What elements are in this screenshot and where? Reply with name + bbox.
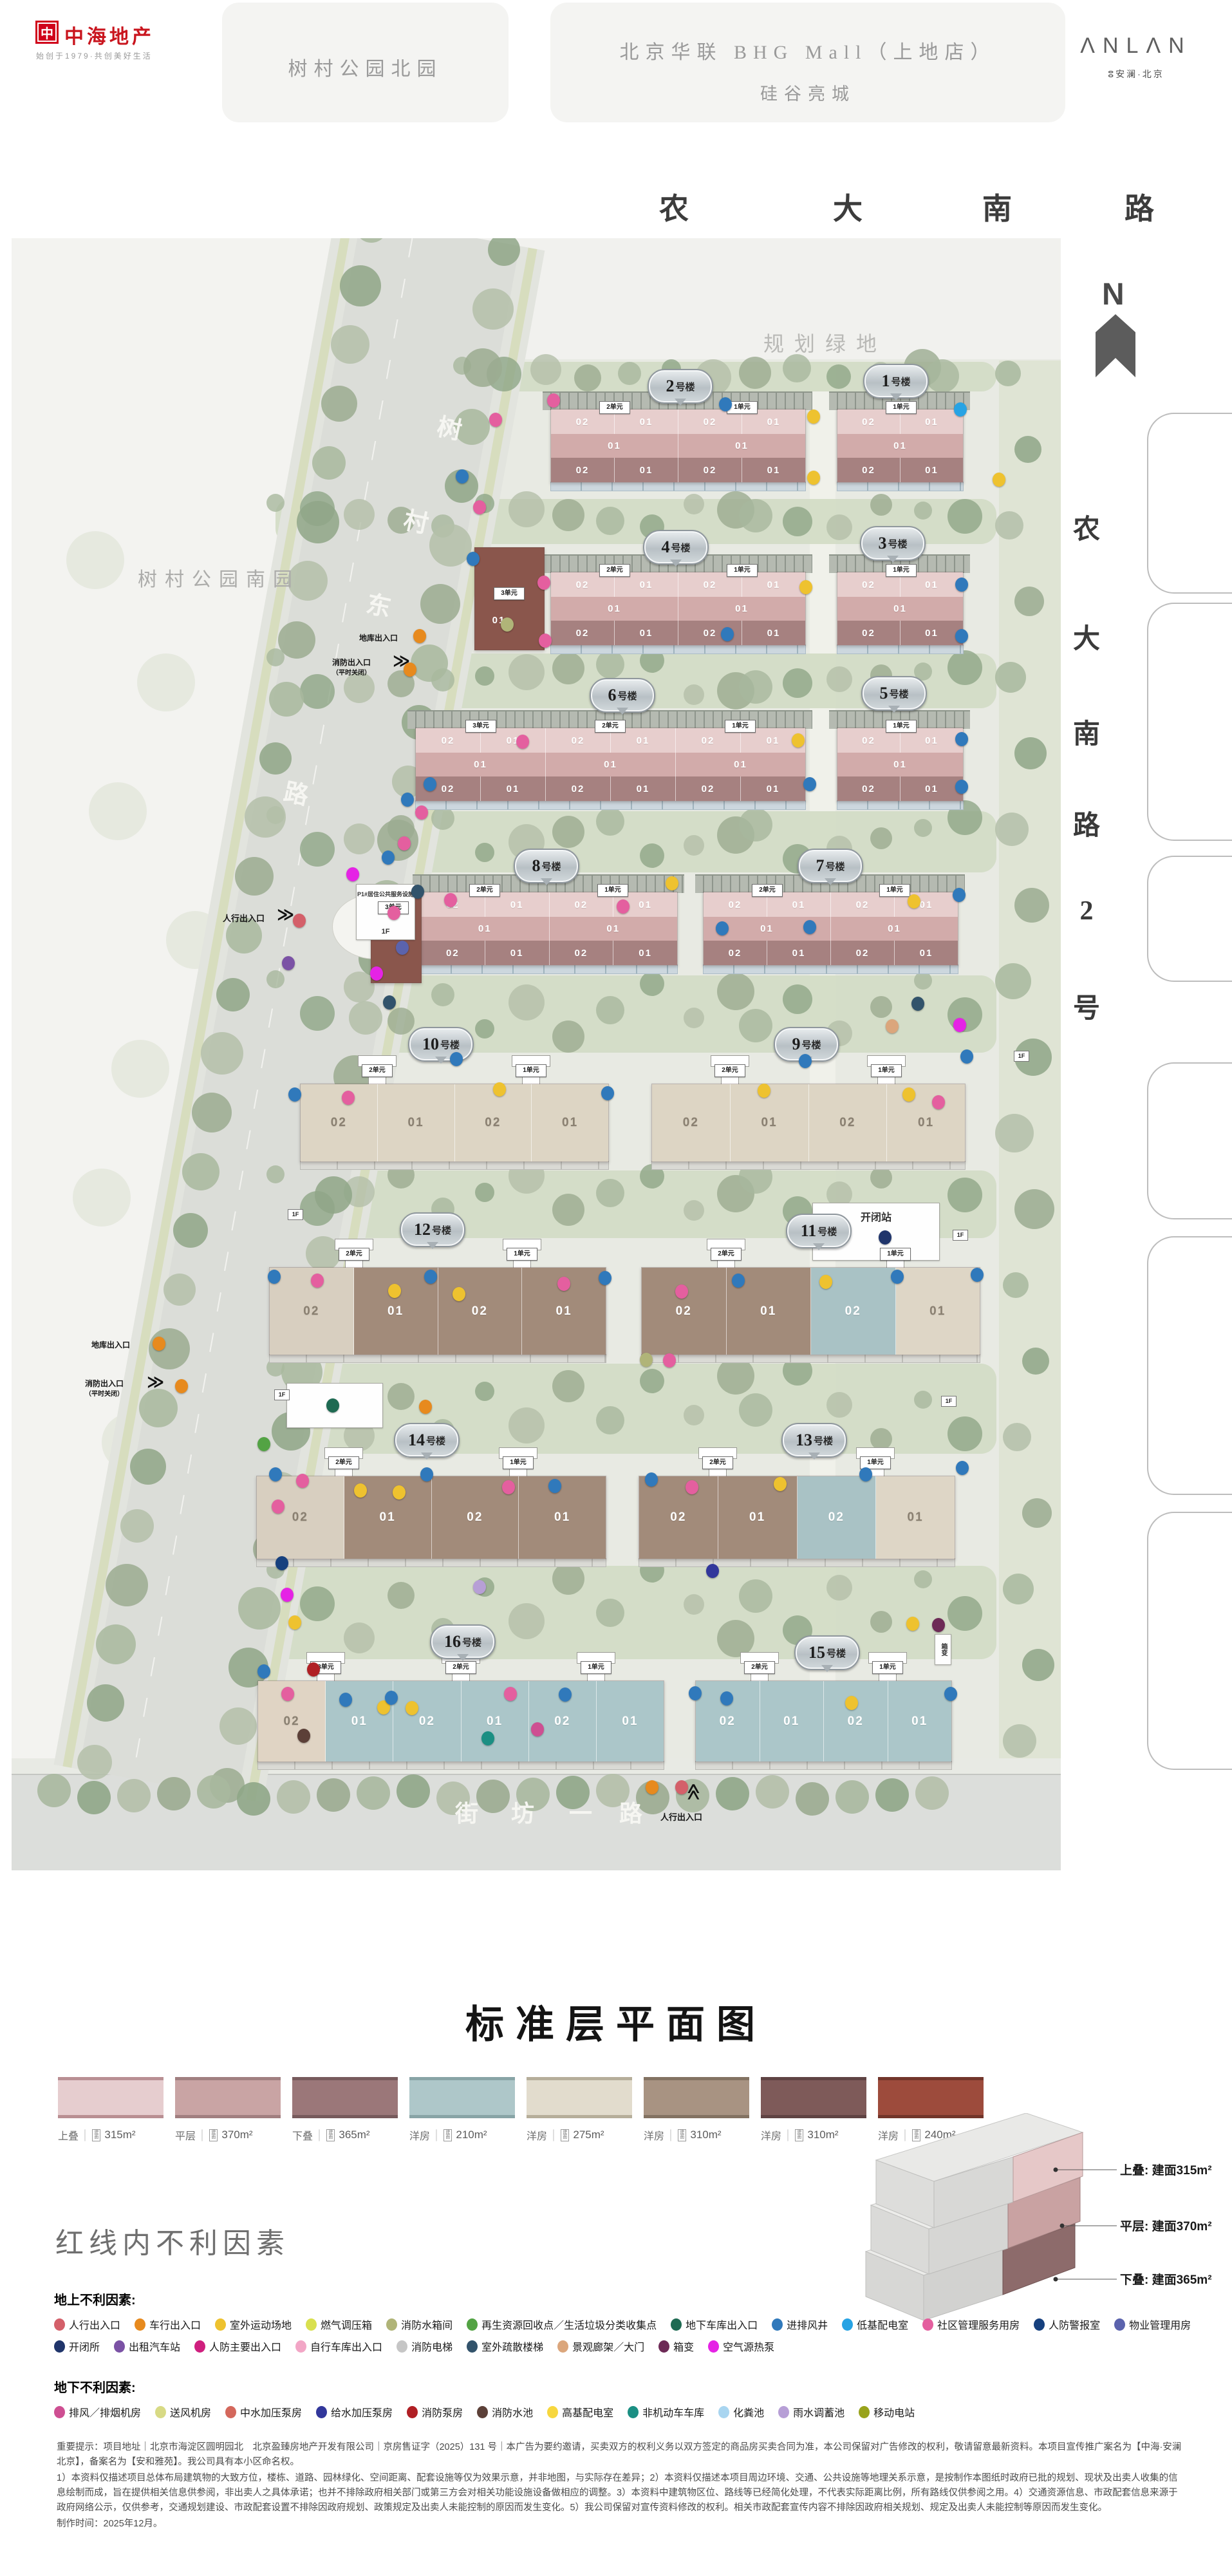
garden-tree: [552, 652, 584, 684]
factor-dot-sport: [493, 1082, 506, 1096]
garden-tree: [640, 843, 664, 868]
south-tree: [117, 1779, 151, 1812]
factor-legend-dot: [1114, 2318, 1125, 2331]
factor-item: 进排风井: [772, 2317, 828, 2332]
legend-text: 370m²: [221, 2129, 252, 2141]
factor-item: 化粪池: [718, 2404, 764, 2420]
street-tree: [182, 1153, 219, 1190]
unit-entrance-tag: 3单元: [465, 720, 496, 733]
factor-dot-vent: [269, 1467, 282, 1481]
factor-dot-comm: [932, 1095, 945, 1109]
facility-label: 箱变: [935, 1635, 951, 1664]
unit-cell: 01: [678, 597, 805, 621]
building-callout-13: 13号楼: [781, 1423, 847, 1458]
factor-item: 消防水池: [477, 2404, 533, 2420]
east-tree: [1022, 1348, 1049, 1375]
south-tree: [77, 1781, 111, 1814]
garden-tree: [596, 807, 624, 836]
floor-tag-1f: 1F: [274, 1389, 290, 1400]
factor-dot-heat: [346, 867, 359, 881]
factor-legend-dot: [397, 2340, 407, 2353]
slab-row: 02010201: [421, 892, 677, 917]
factor-legend-label: 箱变: [673, 2338, 694, 2354]
neighbor-block: [1147, 1512, 1232, 1770]
factor-dot-sport: [388, 1284, 401, 1298]
factor-dot-sport: [799, 580, 812, 594]
factor-dot-comm: [686, 1480, 698, 1494]
street-tree: [245, 796, 286, 838]
legend-text: │: [785, 2130, 791, 2141]
east-tree: [1014, 436, 1041, 463]
factors-above-list: 人行出入口车行出入口室外运动场地燃气调压箱消防水箱间再生资源回收点／生活垃圾分类…: [54, 2317, 1219, 2360]
slab-row: 010101: [416, 753, 805, 776]
legend-text: 洋房: [409, 2127, 430, 2143]
factor-dot-vent: [955, 780, 968, 794]
garden-tree: [870, 1167, 892, 1189]
south-tree: [37, 1774, 71, 1807]
factor-legend-label: 中水加压泵房: [240, 2404, 302, 2420]
factor-legend-dot: [477, 2406, 488, 2418]
factor-dot-sport: [393, 1485, 406, 1500]
unit-cell: 01: [615, 621, 678, 645]
garden-tree: [783, 507, 812, 536]
legend-swatch: [527, 2077, 632, 2118]
east-tree: [1022, 1649, 1054, 1681]
east-road-name-char: 大: [1072, 617, 1101, 656]
garden-tree: [783, 984, 812, 1014]
factor-legend-dot: [547, 2406, 558, 2418]
factor-dot-vent: [859, 1467, 872, 1481]
entrance-arrow-icon: ≫: [147, 1374, 164, 1391]
building-callout-8: 8号楼: [514, 849, 579, 883]
factor-legend-dot: [859, 2406, 870, 2418]
garden-tree: [596, 1599, 624, 1627]
callout-number: 3: [878, 534, 886, 553]
south-tree: [357, 1776, 390, 1810]
east-tree: [1014, 587, 1044, 616]
factor-item: 出租汽车站: [114, 2338, 180, 2354]
street-tree: [219, 1707, 257, 1745]
building-2-slab: 02010201010102010201: [550, 409, 806, 483]
factor-legend-dot: [557, 2340, 568, 2353]
unit-cell: 01: [831, 917, 958, 941]
legend-label: 洋房│建面310m²: [644, 2127, 749, 2143]
legend-text: 建面: [561, 2129, 569, 2141]
site-plan-map: 街坊一路树村东路规划绿地树村公园南园020102010101020102012单…: [12, 238, 1061, 1870]
unit-cell: 01: [837, 597, 963, 621]
unit-cell: 01: [421, 917, 550, 941]
unit-cell: 02: [642, 1268, 727, 1355]
legend-text: 建面: [326, 2129, 335, 2141]
garden-tree: [684, 684, 704, 705]
factor-dot-fpump: [307, 1662, 320, 1677]
garden-tree: [300, 674, 335, 709]
building-1-slab: 0201010201: [837, 409, 964, 483]
unit-entrance-tag: 2单元: [711, 1248, 742, 1261]
factor-dot-comm: [537, 576, 550, 590]
factor-dot-vent: [456, 469, 469, 484]
factor-dot-vent: [891, 1270, 904, 1284]
unit-cell: 02: [831, 941, 895, 965]
factor-dot-comm: [473, 500, 486, 514]
callout-number: 7: [816, 856, 824, 876]
factor-dot-sport: [906, 1617, 919, 1631]
garden-tree: [684, 1008, 704, 1028]
factor-dot-sport: [902, 1087, 915, 1102]
factor-dot-bike: [481, 1731, 494, 1745]
factor-legend-dot: [194, 2340, 205, 2353]
road-name-char: 农: [657, 185, 691, 228]
unit-cell: 02: [798, 1476, 877, 1559]
factor-dot-comm: [663, 1353, 676, 1368]
factor-dot-vent: [424, 1270, 437, 1284]
garden-tree: [739, 1393, 772, 1427]
factor-dot-vent: [420, 1467, 433, 1481]
unit-cell: 01: [550, 917, 678, 941]
street-tree: [411, 644, 448, 682]
unit-cell: 01: [678, 434, 805, 458]
unit-cell: 02: [809, 1084, 888, 1161]
factor-legend-label: 高基配电室: [562, 2404, 613, 2420]
factor-item: 景观廊架／大门: [557, 2338, 644, 2354]
factor-legend-label: 消防水池: [492, 2404, 533, 2420]
unit-entrance-tag: 3单元: [494, 587, 525, 600]
factor-legend-label: 给水加压泵房: [331, 2404, 393, 2420]
unit-entrance-tag: 1单元: [727, 564, 758, 577]
unit-cell: 02: [639, 1476, 718, 1559]
factor-dot-fpool: [297, 1729, 310, 1743]
garden-tree: [914, 972, 932, 990]
south-tree: [157, 1777, 191, 1810]
unit-cell: 01: [718, 1476, 798, 1559]
building-plinth: [837, 482, 964, 491]
callout-number: 15: [808, 1643, 825, 1662]
factor-dot-veh: [175, 1379, 188, 1393]
factor-legend-dot: [772, 2318, 783, 2331]
unit-cell: 02: [678, 458, 742, 482]
unit-cell: 01: [519, 1476, 606, 1559]
factor-item: 消防电梯: [397, 2338, 453, 2354]
factors-below-list: 排风／排烟机房送风机房中水加压泵房给水加压泵房消防泵房消防水池高基配电室非机动车…: [54, 2404, 1219, 2426]
street-tree: [315, 1176, 352, 1214]
south-tree: [397, 1774, 430, 1808]
factor-dot-vent: [385, 1691, 398, 1705]
factor-dot-vent: [955, 732, 968, 746]
east-tree: [995, 361, 1021, 386]
street-tree: [238, 1587, 281, 1630]
factor-dot-sport: [845, 1696, 858, 1710]
legend-item-4: 洋房│建面275m²: [527, 2077, 632, 2143]
site-plan-poster: 树村公园北园北京华联 BHG Mall（上地店）硅谷亮城 中 中海地产 始创于1…: [0, 0, 1232, 2576]
slab-row: 01: [837, 434, 963, 458]
unit-cell: 01: [741, 776, 805, 801]
unit-cell: 01: [888, 1681, 952, 1762]
unit-entrance-tag: 2单元: [599, 564, 630, 577]
slab-row: 0101: [704, 917, 958, 941]
factor-dot-slate: [411, 885, 424, 899]
building-plinth: [415, 800, 806, 810]
legend-text: 315m²: [104, 2129, 135, 2141]
unit-entrance-tag: 2单元: [362, 1064, 393, 1077]
building-callout-5: 5号楼: [861, 676, 927, 711]
callout-suffix: 号楼: [891, 375, 910, 388]
factor-legend-dot: [658, 2340, 669, 2353]
north-arrow-icon: [1088, 310, 1143, 388]
callout-suffix: 号楼: [671, 541, 690, 554]
factor-dot-rain: [473, 1580, 486, 1594]
factor-item: 高基配电室: [547, 2404, 613, 2420]
garden-tree: [475, 1382, 494, 1401]
factor-dot-sport: [288, 1615, 301, 1630]
garden-tree: [530, 354, 561, 385]
building-plinth: [300, 1161, 609, 1170]
factor-legend-label: 自行车库出入口: [310, 2338, 382, 2354]
street-tree: [139, 1389, 178, 1427]
street-tree: [259, 742, 292, 775]
factor-dot-comm: [557, 1277, 570, 1291]
factor-dot-xiang: [932, 1618, 945, 1632]
factor-dot-comm: [502, 1480, 515, 1494]
building-plinth: [550, 482, 806, 491]
factor-item: 消防泵房: [407, 2404, 463, 2420]
factor-legend-label: 出租汽车站: [129, 2338, 180, 2354]
floor-tag-1f: 1F: [941, 1396, 957, 1407]
unit-entrance-tag: 2单元: [328, 1456, 359, 1469]
east-road-name-char: 2: [1072, 896, 1101, 926]
factor-item: 物业管理用房: [1114, 2317, 1191, 2332]
factor-dot-vent: [803, 777, 816, 791]
slab-row: 0101: [551, 434, 805, 458]
factor-dot-taxi: [282, 956, 295, 970]
callout-number: 9: [792, 1035, 800, 1054]
entrance-arrow-icon: ≫: [686, 1783, 702, 1800]
stack-iso-diagram: 上叠: 建面315m² 平层: 建面370m² 下叠: 建面365m²: [830, 2113, 1229, 2338]
street-tree: [349, 1001, 382, 1035]
east-tree: [1003, 1724, 1036, 1758]
south-tree: [197, 1775, 230, 1809]
legend-swatch: [58, 2077, 163, 2118]
factor-legend-label: 化粪池: [733, 2404, 764, 2420]
entrance-arrow-icon: ≫: [393, 653, 410, 670]
street-tree: [130, 1449, 166, 1485]
unit-entrance-tag: 2单元: [599, 401, 630, 414]
factor-dot-vent: [971, 1268, 984, 1282]
garden-tree: [387, 1383, 415, 1410]
garden-tree: [431, 807, 454, 830]
callout-number: 5: [879, 684, 888, 703]
factor-dot-comm: [272, 1500, 285, 1514]
unit-cell: 01: [611, 776, 676, 801]
legend-item-1: 平层│建面370m²: [175, 2077, 281, 2143]
factor-dot-heat: [281, 1588, 294, 1602]
factor-dot-sport: [993, 473, 1005, 487]
legend-swatch: [761, 2077, 866, 2118]
unit-cell: 01: [887, 1084, 965, 1161]
garden-tree: [509, 1407, 545, 1443]
garden-tree: [684, 494, 704, 514]
east-tree: [995, 813, 1029, 846]
factor-item: 雨水调蓄池: [778, 2404, 845, 2420]
factor-legend-dot: [922, 2318, 933, 2331]
building-3-slab: 0201010201: [837, 572, 964, 646]
factor-dot-exh: [531, 1722, 544, 1736]
building-5-slab: 0201010201: [837, 728, 964, 802]
garden-tree: [739, 808, 772, 841]
project-brand: ΛNLΛN ⵓ安澜·北京: [1069, 33, 1204, 80]
factor-dot-veh: [153, 1337, 165, 1351]
south-tree: [835, 1780, 869, 1814]
building-plinth: [550, 644, 806, 654]
factor-legend-label: 消防泵房: [422, 2404, 463, 2420]
garden-tree: [870, 1428, 892, 1450]
factor-dot-comm: [516, 735, 529, 749]
factor-legend-dot: [54, 2318, 65, 2331]
factor-dot-veh: [419, 1400, 432, 1414]
neighbor-block: [1147, 603, 1232, 841]
park-tree: [111, 1040, 169, 1098]
legend-text: 洋房: [644, 2127, 664, 2143]
factor-dot-sport: [354, 1483, 367, 1498]
factor-dot-water: [706, 1564, 719, 1578]
unit-cell: 01: [485, 941, 550, 965]
unit-entrance-tag: 1单元: [516, 1064, 546, 1077]
disclaimer-p1: 重要提示：项目地址｜北京市海淀区圆明园北 北京盈臻房地产开发有限公司｜京房售证字…: [57, 2440, 1183, 2470]
entrance-label: 消防出入口: [332, 657, 371, 668]
callout-number: 6: [608, 686, 616, 705]
unit-cell: 01: [378, 1084, 455, 1161]
factor-dot-vent: [955, 578, 968, 592]
unit-cell: 02: [438, 1268, 523, 1355]
garden-tree: [475, 843, 494, 862]
factor-item: 室外疏散楼梯: [467, 2338, 543, 2354]
callout-number: 2: [666, 377, 674, 396]
east-tree: [995, 1114, 1034, 1152]
factor-item: 空气源热泵: [708, 2338, 774, 2354]
garden-tree: [552, 1563, 584, 1595]
building-plinth: [837, 800, 964, 810]
building-callout-1: 1号楼: [863, 364, 929, 399]
unit-cell: 02: [550, 941, 614, 965]
south-tree: [476, 1780, 510, 1813]
factor-legend-dot: [114, 2340, 125, 2353]
garden-tree: [640, 972, 664, 996]
unit-entrance-tag: 1单元: [507, 1248, 537, 1261]
factor-legend-dot: [467, 2318, 478, 2331]
east-tree: [1014, 1189, 1054, 1229]
factor-dot-comm: [342, 1091, 355, 1105]
factor-dot-vent: [716, 921, 729, 935]
factor-item: 人防警报室: [1034, 2317, 1100, 2332]
factor-dot-slate: [383, 995, 396, 1010]
unit-entrance-tag: 1单元: [581, 1661, 611, 1674]
east-tree: [1003, 1423, 1031, 1451]
legend-item-5: 洋房│建面310m²: [644, 2077, 749, 2143]
unit-cell: 02: [837, 776, 901, 801]
garden-tree: [947, 1596, 982, 1631]
anlan-subtitle: ⵓ安澜·北京: [1069, 68, 1204, 80]
slab-row: 01: [837, 597, 963, 621]
neighbor-block: [1147, 856, 1232, 982]
disclaimer-p2: 1）本资料仅描述项目总体布局建筑物的大致方位，楼栋、道路、园林绿化、空间距离、配…: [57, 2471, 1183, 2515]
garden-tree: [596, 507, 624, 535]
factor-dot-vent: [257, 1664, 270, 1678]
factor-dot-vent: [955, 629, 968, 643]
factor-dot-vent: [960, 1049, 973, 1064]
factor-legend-label: 空气源热泵: [723, 2338, 774, 2354]
unit-entrance-tag: 1单元: [886, 720, 917, 733]
factor-dot-sport: [406, 1701, 418, 1715]
factor-dot-sport: [666, 876, 678, 890]
legend-text: 建面: [795, 2129, 803, 2141]
east-road-name-char: 路: [1072, 804, 1101, 843]
south-tree: [317, 1778, 350, 1812]
factor-legend-dot: [842, 2318, 853, 2331]
legend-text: │: [668, 2130, 674, 2141]
street-tree: [216, 978, 250, 1011]
factor-dot-heat: [370, 966, 383, 981]
factor-dot-ped: [293, 914, 306, 928]
unit-cell: 01: [876, 1476, 955, 1559]
factor-dot-alarm: [275, 1556, 288, 1570]
factor-dot-comm: [539, 634, 552, 648]
developer-logo-text: 中海地产: [64, 21, 154, 49]
garden-tree: [387, 1008, 415, 1035]
unit-entrance-tag: 1单元: [503, 1456, 534, 1469]
garden-tree: [552, 499, 584, 531]
factor-legend-dot: [135, 2318, 145, 2331]
unit-cell: 01: [760, 1681, 825, 1762]
entrance-label: 消防出入口: [85, 1378, 124, 1389]
callout-suffix: 号楼: [825, 860, 845, 873]
entrance-label: 地库出入口: [359, 632, 398, 643]
factor-dot-comm: [504, 1687, 517, 1701]
garden-tree: [574, 364, 601, 391]
building-callout-14: 14号楼: [394, 1423, 460, 1458]
neighbor-block: [1147, 1062, 1232, 1219]
building-plinth: [695, 1761, 952, 1770]
unit-cell: 02: [301, 1084, 378, 1161]
slab-row: 01: [837, 753, 963, 776]
garden-tree: [826, 1575, 852, 1601]
unit-entrance-tag: 1单元: [597, 884, 628, 897]
factor-item: 消防水箱间: [386, 2317, 453, 2332]
factor-dot-prop: [396, 941, 409, 955]
legend-label: 上叠│建面315m²: [58, 2127, 163, 2143]
unit-cell: 01: [551, 597, 678, 621]
garden-tree: [684, 1200, 704, 1221]
factor-dot-recycle: [257, 1437, 270, 1451]
factor-item: 室外运动场地: [215, 2317, 292, 2332]
unit-cell: 01: [481, 776, 546, 801]
building-9-slab: 02010201: [651, 1084, 966, 1162]
iso-label-upper: 上叠: 建面315m²: [1120, 2163, 1212, 2177]
east-tree: [995, 511, 1023, 540]
callout-suffix: 号楼: [814, 1434, 833, 1447]
factor-dot-heat: [953, 1018, 966, 1032]
east-tree: [1014, 737, 1047, 769]
legend-swatch: [409, 2077, 515, 2118]
garden-tree: [552, 816, 584, 848]
legend-label: 洋房│建面210m²: [409, 2127, 515, 2143]
garden-tree: [552, 1020, 584, 1053]
factor-dot-vent: [450, 1052, 463, 1066]
east-tree: [1003, 1574, 1034, 1604]
unit-cell: 01: [742, 458, 805, 482]
street-tree: [429, 524, 472, 567]
garden-tree: [266, 494, 285, 512]
factor-legend-dot: [225, 2406, 236, 2418]
factor-legend-dot: [54, 2340, 65, 2353]
